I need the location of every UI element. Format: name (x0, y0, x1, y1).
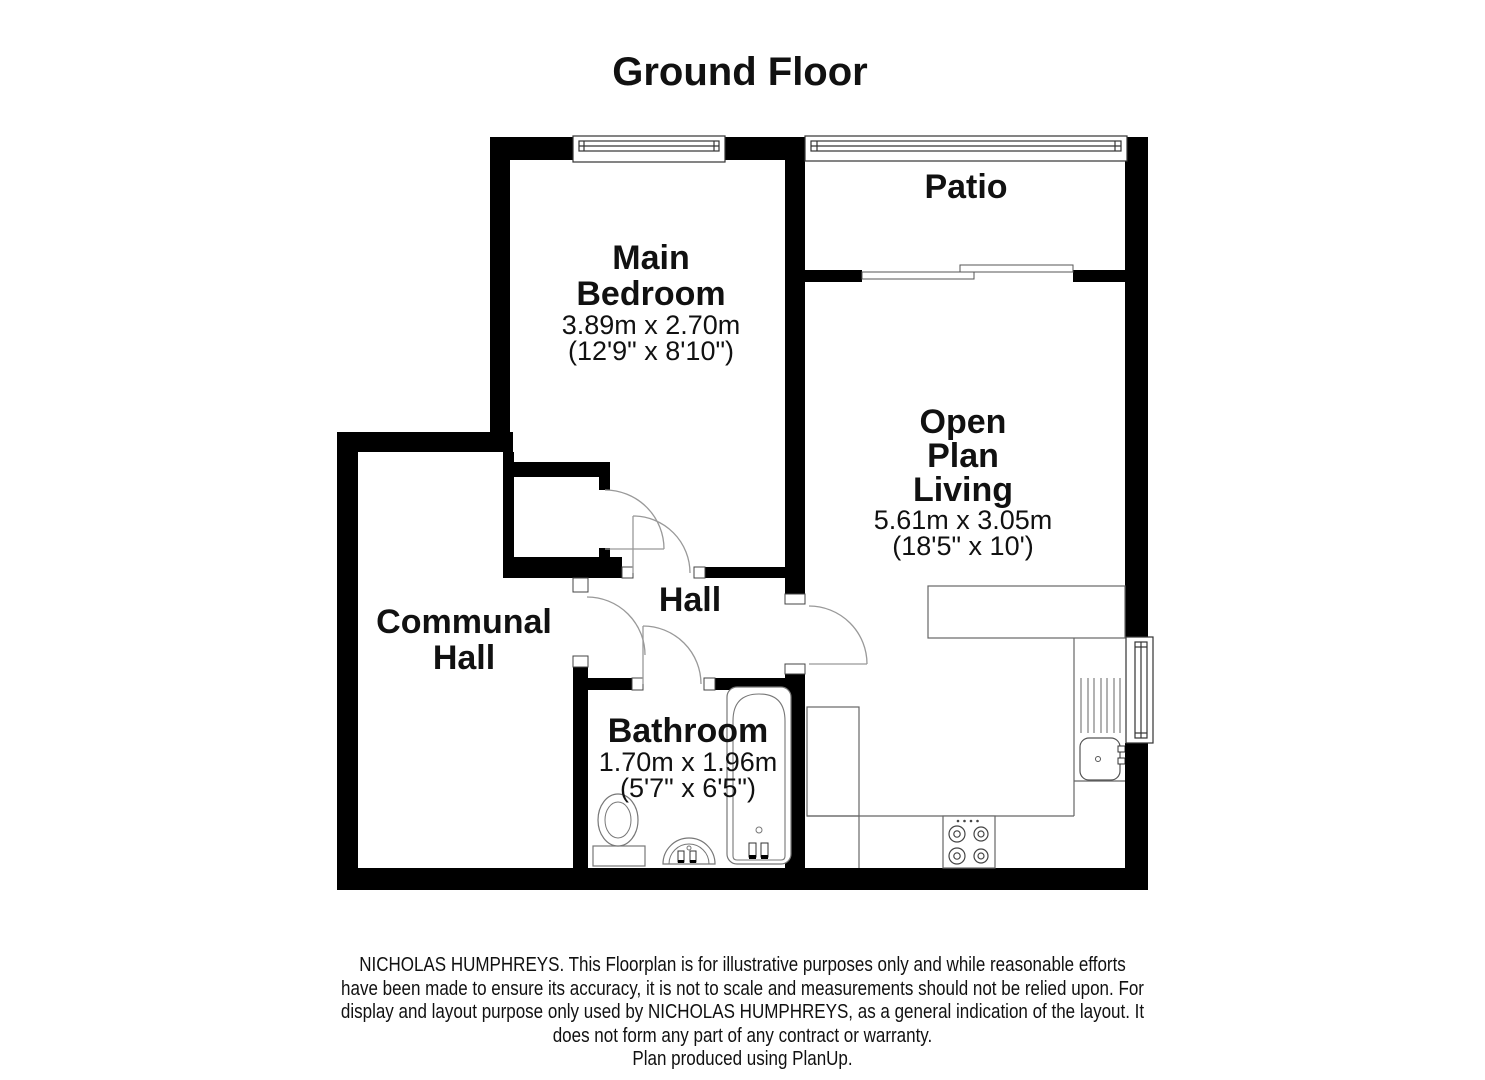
room-label-hall: Hall (490, 582, 890, 618)
disclaimer-line: does not form any part of any contract o… (111, 1025, 1373, 1049)
living-window-icon (1126, 637, 1153, 743)
wall-bedroom-bottom (705, 567, 785, 578)
room-name-line: Bedroom (451, 276, 851, 312)
wall-right-upper (1125, 137, 1148, 637)
room-dims-metric: 1.70m x 1.96m (488, 749, 888, 775)
room-dims-metric: 5.61m x 3.05m (763, 507, 1163, 533)
floorplan-drawing (0, 0, 1485, 1080)
wall-bathroom-top-left (588, 678, 632, 690)
room-dims-imperial: (5'7" x 6'5") (488, 775, 888, 801)
room-label-bathroom: Bathroom 1.70m x 1.96m (5'7" x 6'5") (488, 713, 888, 801)
wall-bottom (337, 868, 1148, 890)
room-label-main-bedroom: Main Bedroom 3.89m x 2.70m (12'9" x 8'10… (451, 240, 851, 364)
wall-patio-bottom-right (1073, 270, 1125, 282)
room-name-line: Bathroom (488, 713, 888, 749)
wall-communal-top (337, 432, 513, 452)
patio-window-icon (805, 136, 1127, 161)
bedroom-door-arc (633, 516, 690, 573)
basin-icon (663, 838, 715, 864)
room-name-line: Main (451, 240, 851, 276)
room-dims-imperial: (18'5" x 10') (763, 533, 1163, 559)
toilet-icon (593, 794, 645, 866)
disclaimer-line: Plan produced using PlanUp. (111, 1048, 1373, 1072)
disclaimer-line: NICHOLAS HUMPHREYS. This Floorplan is fo… (111, 954, 1373, 978)
bedroom-window-icon (573, 136, 725, 162)
room-name-line: Plan (763, 439, 1163, 473)
wall-closet-right-top (599, 462, 610, 490)
page-title: Ground Floor (440, 52, 1040, 92)
room-name-line: Open (763, 405, 1163, 439)
room-dims-imperial: (12'9" x 8'10") (451, 338, 851, 364)
kitchen-sink-icon (1080, 738, 1128, 780)
wall-closet-bottom (503, 557, 622, 578)
room-name-line: Hall (264, 640, 664, 676)
disclaimer-line: display and layout purpose only used by … (111, 1001, 1373, 1025)
hob-icon (943, 816, 995, 868)
disclaimer-text: NICHOLAS HUMPHREYS. This Floorplan is fo… (111, 954, 1373, 1072)
room-label-patio: Patio (766, 169, 1166, 205)
closet-door-arc (605, 490, 664, 549)
room-name-line: Living (763, 473, 1163, 507)
room-dims-metric: 3.89m x 2.70m (451, 312, 851, 338)
disclaimer-line: have been made to ensure its accuracy, i… (111, 978, 1373, 1002)
floorplan-page: Ground Floor Patio Main Bedroom 3.89m x … (0, 0, 1485, 1080)
wall-top-mid (722, 137, 805, 160)
wall-closet-top (503, 462, 610, 477)
drainer-icon (1081, 678, 1120, 733)
wall-right-lower (1125, 743, 1148, 890)
room-label-open-plan-living: Open Plan Living 5.61m x 3.05m (18'5" x … (763, 405, 1163, 559)
sliding-door-icon (862, 265, 1073, 279)
